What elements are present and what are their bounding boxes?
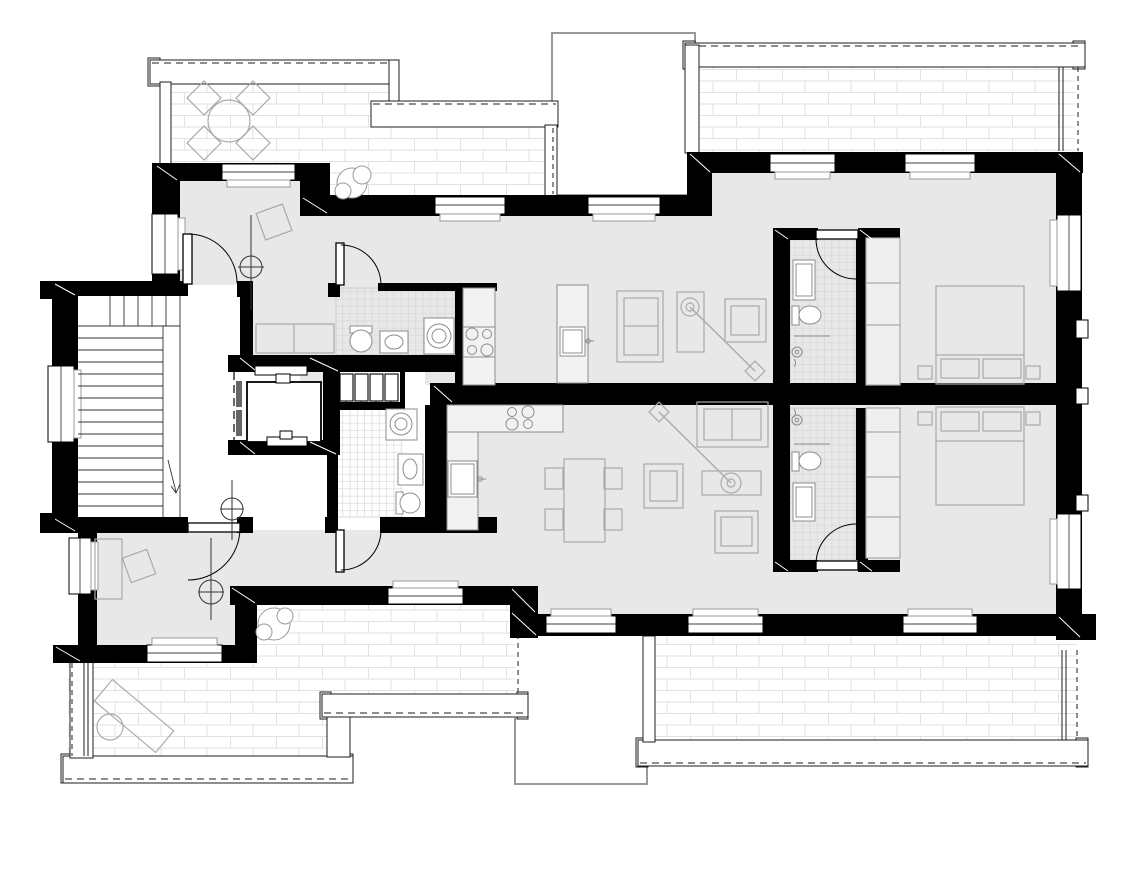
- toilet-bowl: [350, 330, 372, 352]
- railing-nw-top: [150, 60, 398, 84]
- wall-bump: [1076, 320, 1088, 338]
- railing-se-band: [638, 740, 1088, 766]
- toilet-bowl: [799, 452, 821, 470]
- door-leaf: [336, 530, 344, 572]
- plant-foliage: [256, 624, 272, 640]
- toilet-bowl: [400, 493, 420, 513]
- locker: [385, 374, 398, 401]
- elevator-door-clamp-bottom: [280, 431, 292, 439]
- wardrobe-body: [866, 408, 900, 558]
- counter: [447, 405, 563, 432]
- sink-vanity: [380, 331, 408, 353]
- void-north: [552, 33, 695, 195]
- wardrobe-body: [866, 238, 900, 385]
- railing-nw-left: [160, 82, 171, 164]
- terrace-northwest-paving-east: [394, 125, 556, 196]
- railing-ne-top: [685, 43, 1085, 67]
- locker: [355, 374, 368, 401]
- elevator-guide-rail: [236, 381, 242, 407]
- elevator-guide-rail: [236, 410, 242, 436]
- floor-plan-page: [0, 0, 1135, 869]
- railing-nw-right: [545, 125, 557, 196]
- washing-machine: [424, 318, 454, 354]
- wardrobe-upper: [866, 238, 900, 385]
- terrace-southwest-paving: [68, 661, 350, 758]
- railing-ne-left: [685, 45, 699, 153]
- sink: [448, 461, 477, 497]
- railing-sw-left: [70, 661, 93, 758]
- terrace-northeast-paving: [700, 65, 1075, 153]
- railing-sw-band2: [322, 694, 528, 717]
- railing-nw-band2: [371, 101, 558, 127]
- railing-sw-connector: [327, 717, 350, 757]
- locker: [370, 374, 383, 401]
- wall-bump: [1076, 495, 1088, 511]
- floor-plan-canvas: [0, 0, 1135, 869]
- terrace-southeast-paving: [653, 636, 1077, 742]
- sink: [560, 327, 585, 356]
- plant-foliage: [353, 166, 371, 184]
- elevator-door-clamp-top: [276, 374, 290, 383]
- toilet-tank: [792, 452, 799, 471]
- locker: [340, 374, 353, 401]
- floor-lower-entry-room: [95, 527, 235, 647]
- railing-se-left: [643, 636, 655, 742]
- toilet-bowl: [799, 306, 821, 324]
- toilet-tank: [792, 306, 799, 325]
- floor-lower-south: [538, 588, 1056, 616]
- plant-foliage: [335, 183, 351, 199]
- door-leaf: [336, 243, 344, 285]
- plant-foliage: [277, 608, 293, 624]
- wardrobe-lower: [866, 408, 900, 558]
- door-leaf: [816, 561, 858, 570]
- wall-bump: [1076, 388, 1088, 404]
- door-leaf: [183, 234, 192, 284]
- door-leaf: [816, 230, 858, 239]
- railing-nw-step: [389, 60, 399, 107]
